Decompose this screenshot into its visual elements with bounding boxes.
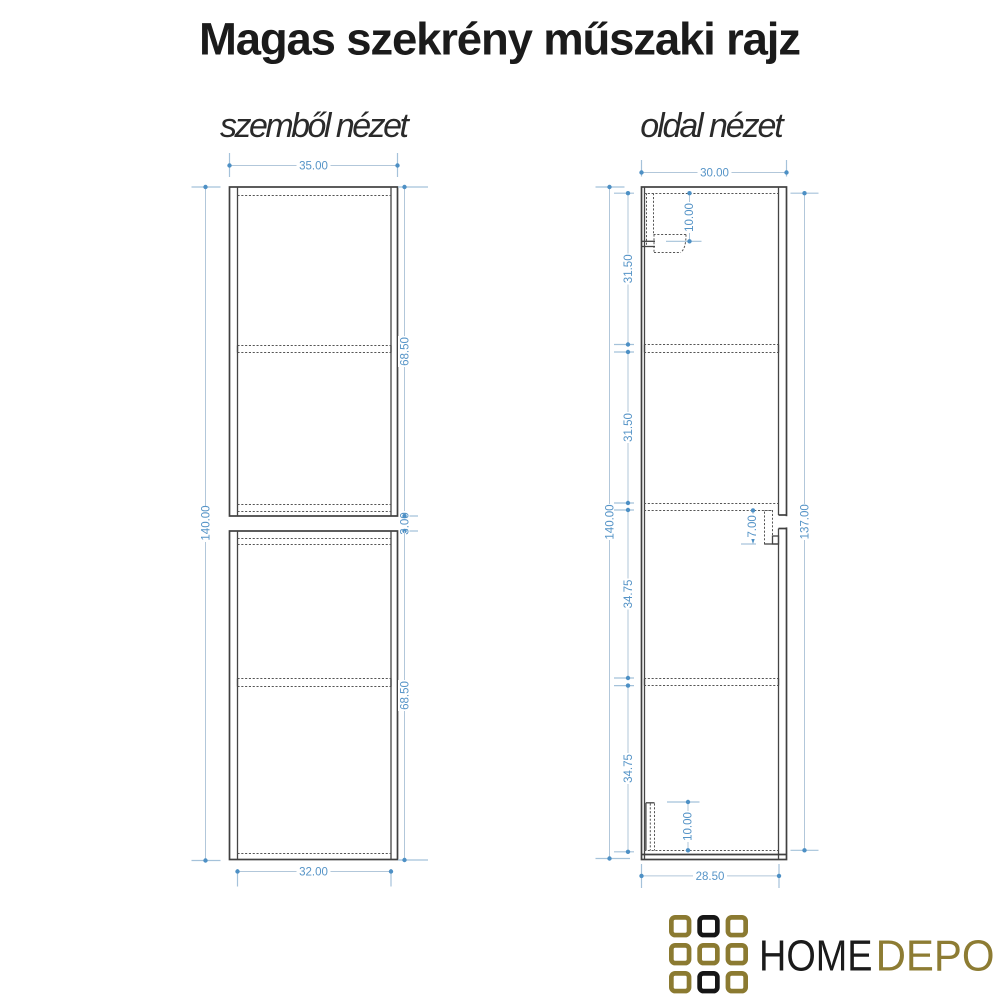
svg-text:10.00: 10.00 xyxy=(683,812,695,841)
svg-text:137.00: 137.00 xyxy=(800,504,812,539)
svg-text:30.00: 30.00 xyxy=(700,168,729,180)
svg-text:68.50: 68.50 xyxy=(400,681,412,710)
svg-text:32.00: 32.00 xyxy=(299,867,328,879)
svg-text:HOME: HOME xyxy=(759,932,873,981)
svg-text:DEPO: DEPO xyxy=(876,932,995,981)
svg-text:34.75: 34.75 xyxy=(623,580,635,609)
svg-text:140.00: 140.00 xyxy=(201,505,213,540)
svg-text:28.50: 28.50 xyxy=(696,871,725,883)
svg-text:szemből nézet: szemből nézet xyxy=(220,107,411,145)
svg-text:Magas szekrény műszaki rajz: Magas szekrény műszaki rajz xyxy=(199,14,801,65)
svg-text:7.00: 7.00 xyxy=(747,515,759,537)
svg-text:oldal nézet: oldal nézet xyxy=(640,107,785,145)
svg-text:68.50: 68.50 xyxy=(400,337,412,366)
svg-text:35.00: 35.00 xyxy=(299,161,328,173)
svg-text:31.50: 31.50 xyxy=(623,413,635,442)
svg-text:34.75: 34.75 xyxy=(623,754,635,783)
svg-text:10.00: 10.00 xyxy=(684,203,696,232)
svg-text:31.50: 31.50 xyxy=(623,254,635,283)
